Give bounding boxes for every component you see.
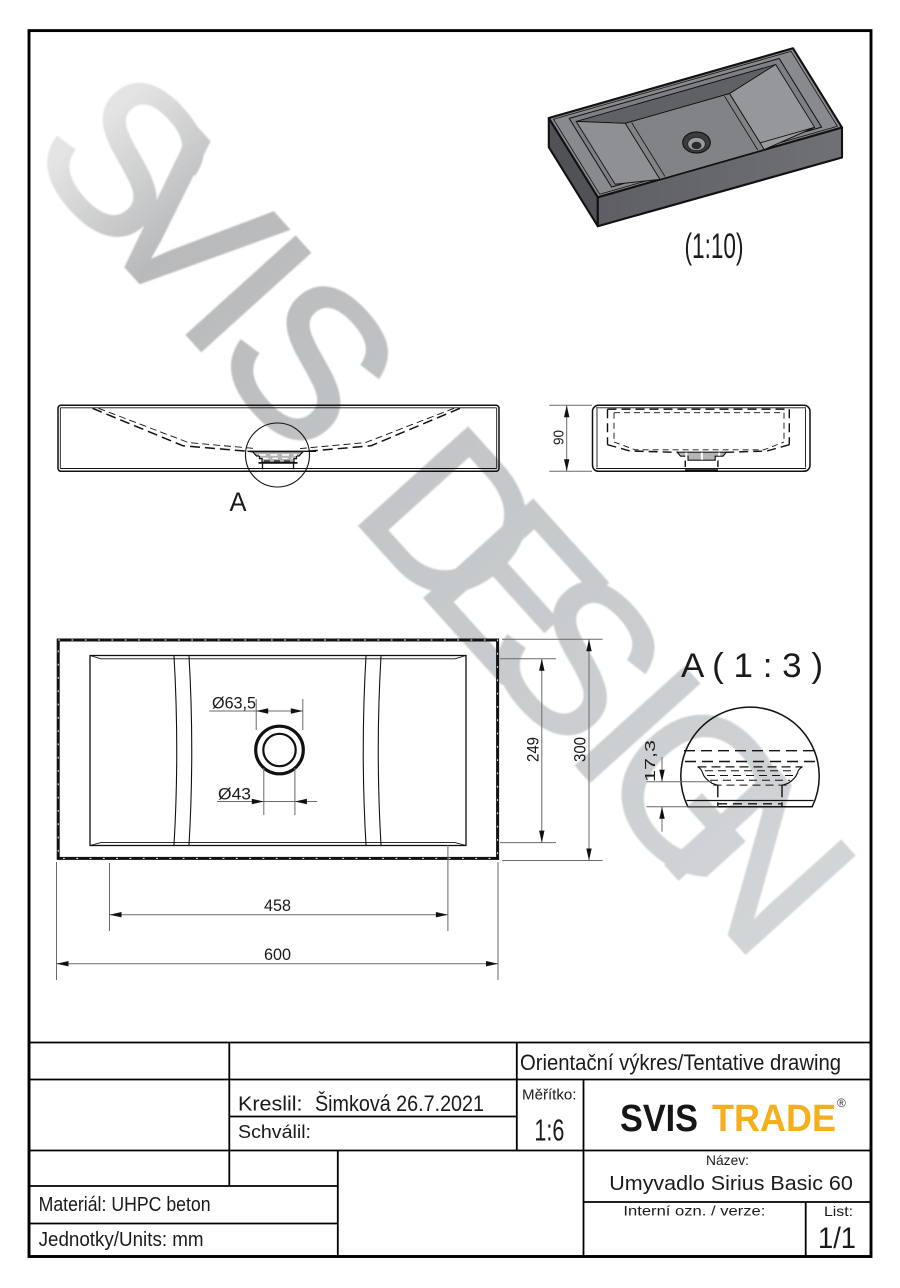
svg-text:Materiál: UHPC beton: Materiál: UHPC beton (39, 1194, 211, 1216)
svg-text:Interní ozn. / verze:: Interní ozn. / verze: (623, 1203, 765, 1219)
svg-text:Orientační výkres/Tentative dr: Orientační výkres/Tentative drawing (520, 1050, 841, 1075)
svg-text:Ø43: Ø43 (218, 785, 251, 804)
svg-text:600: 600 (264, 945, 291, 964)
svg-text:Název:: Název: (706, 1152, 749, 1168)
svg-text:Měřítko:: Měřítko: (522, 1087, 577, 1103)
svg-text:Ø63,5: Ø63,5 (212, 694, 256, 713)
svg-text:A: A (230, 487, 247, 517)
svg-text:List:: List: (824, 1203, 853, 1219)
svg-text:90: 90 (551, 430, 568, 445)
svg-text:Umyvadlo Sirius Basic 60: Umyvadlo Sirius Basic 60 (609, 1172, 853, 1195)
svg-text:300: 300 (571, 737, 590, 762)
svg-text:®: ® (837, 1096, 846, 1110)
svg-text:Jednotky/Units: mm: Jednotky/Units: mm (39, 1229, 204, 1251)
svg-text:Kreslil:: Kreslil: (238, 1094, 303, 1116)
svg-text:1/1: 1/1 (818, 1222, 856, 1255)
svg-text:SVIS: SVIS (620, 1098, 698, 1140)
svg-text:458: 458 (264, 896, 291, 915)
svg-text:TRADE: TRADE (712, 1098, 836, 1140)
svg-text:17,3: 17,3 (642, 740, 659, 782)
svg-text:1:6: 1:6 (534, 1112, 564, 1147)
svg-text:249: 249 (524, 737, 543, 762)
svg-text:Schválil:: Schválil: (238, 1122, 311, 1142)
svg-text:A ( 1 : 3 ): A ( 1 : 3 ) (681, 647, 823, 685)
svg-text:Šimková 26.7.2021: Šimková 26.7.2021 (315, 1091, 484, 1116)
svg-text:(1:10): (1:10) (685, 227, 744, 266)
